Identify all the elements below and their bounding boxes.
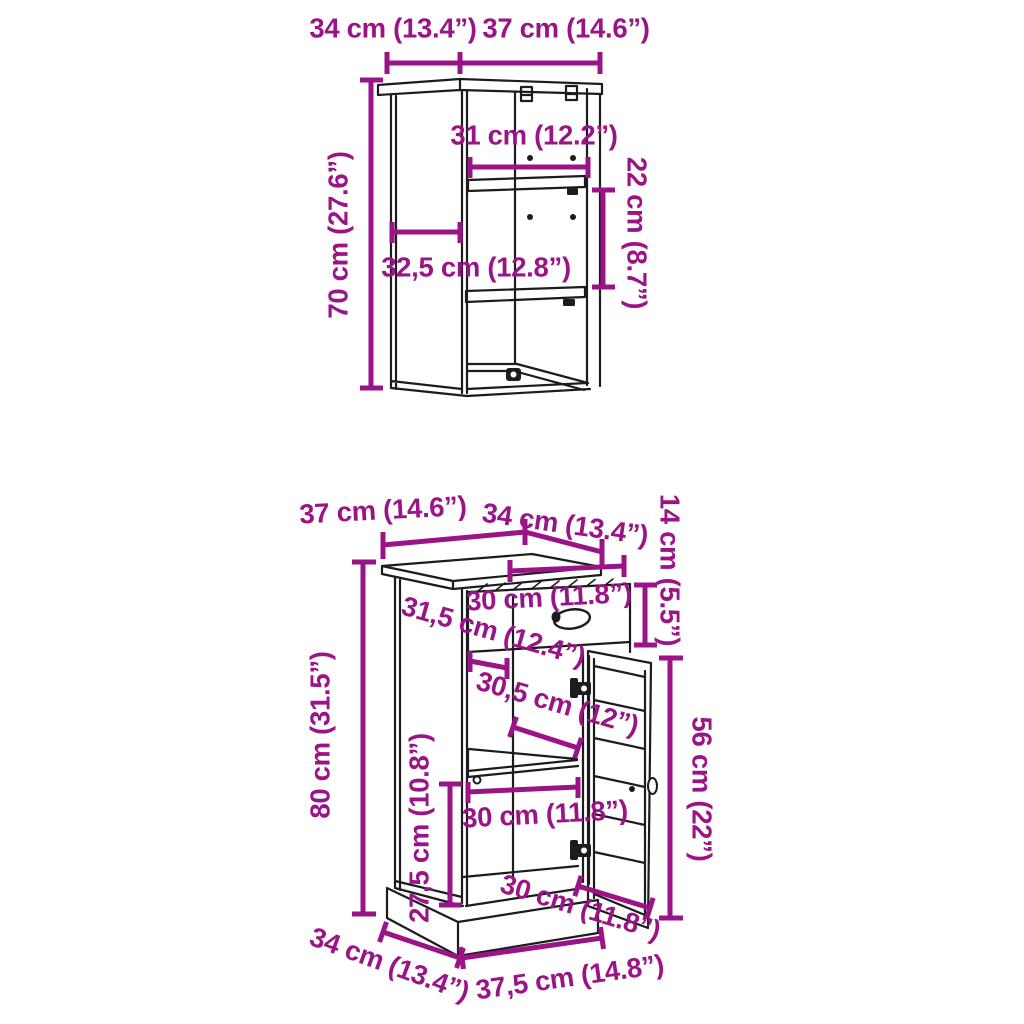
dim-floor-top-section	[634, 585, 657, 645]
floor-label-top-section-height: 14 cm (5.5”)	[655, 494, 686, 646]
wall-label-top-width: 37 cm (14.6”)	[482, 12, 649, 43]
dim-wall-shelf-gap	[592, 190, 615, 287]
wall-door-knob-center	[511, 372, 517, 378]
dim-floor-lower-section	[439, 784, 462, 905]
floor-label-height: 80 cm (31.5”)	[304, 651, 335, 818]
wall-label-height: 70 cm (27.6”)	[322, 151, 353, 318]
dim-floor-height	[352, 562, 376, 914]
pin-hole-dot	[570, 155, 576, 161]
hinge-plate	[570, 840, 578, 860]
floor-label-base-width: 37,5 cm (14.8”)	[474, 948, 666, 1005]
pin-hole-dot	[527, 155, 533, 161]
pin-hole-dot	[570, 214, 576, 220]
floor-label-drawer-width: 30 cm (11.8”)	[465, 577, 632, 617]
dimension-diagram: 34 cm (13.4”) 37 cm (14.6”) 31 cm (12.2”…	[0, 0, 1024, 1024]
hinge-screw	[581, 848, 587, 854]
floor-label-lower-section-height: 27,5 cm (10.8”)	[403, 733, 434, 923]
floor-label-inner-width-upper: 30,5 cm (12”)	[473, 665, 642, 741]
wall-label-inner-depth: 32,5 cm (12.8”)	[381, 251, 571, 282]
door-knob-dot	[629, 786, 635, 792]
hinge-screw	[581, 686, 587, 692]
wall-cabinet-shelves	[466, 176, 585, 302]
wall-label-shelf-gap: 22 cm (8.7”)	[622, 157, 653, 309]
floor-label-door-height: 56 cm (22”)	[687, 717, 718, 862]
dim-wall-top	[387, 52, 600, 74]
shelf-bracket	[563, 299, 575, 306]
drawer-handle-end	[552, 612, 561, 623]
wall-label-inner-width: 31 cm (12.2”)	[450, 119, 617, 150]
dim-floor-door-height	[659, 658, 683, 918]
wall-label-top-depth: 34 cm (13.4”)	[309, 12, 476, 43]
diagram-svg: 34 cm (13.4”) 37 cm (14.6”) 31 cm (12.2”…	[0, 0, 1024, 1024]
dim-wall-inner-depth	[392, 222, 460, 243]
dim-wall-height	[360, 80, 383, 388]
shelf-peg	[474, 777, 481, 784]
shelf-bracket	[567, 188, 578, 195]
dim-floor-inner-width-upper	[510, 717, 582, 758]
door-knob	[648, 778, 657, 794]
floor-cabinet-door	[588, 651, 651, 928]
pin-hole-dot	[527, 214, 533, 220]
floor-label-top-width: 37 cm (14.6”)	[299, 490, 468, 530]
floor-label-inner-width-lower: 30 cm (11.8”)	[461, 794, 628, 834]
floor-cabinet-shelf	[468, 749, 578, 777]
